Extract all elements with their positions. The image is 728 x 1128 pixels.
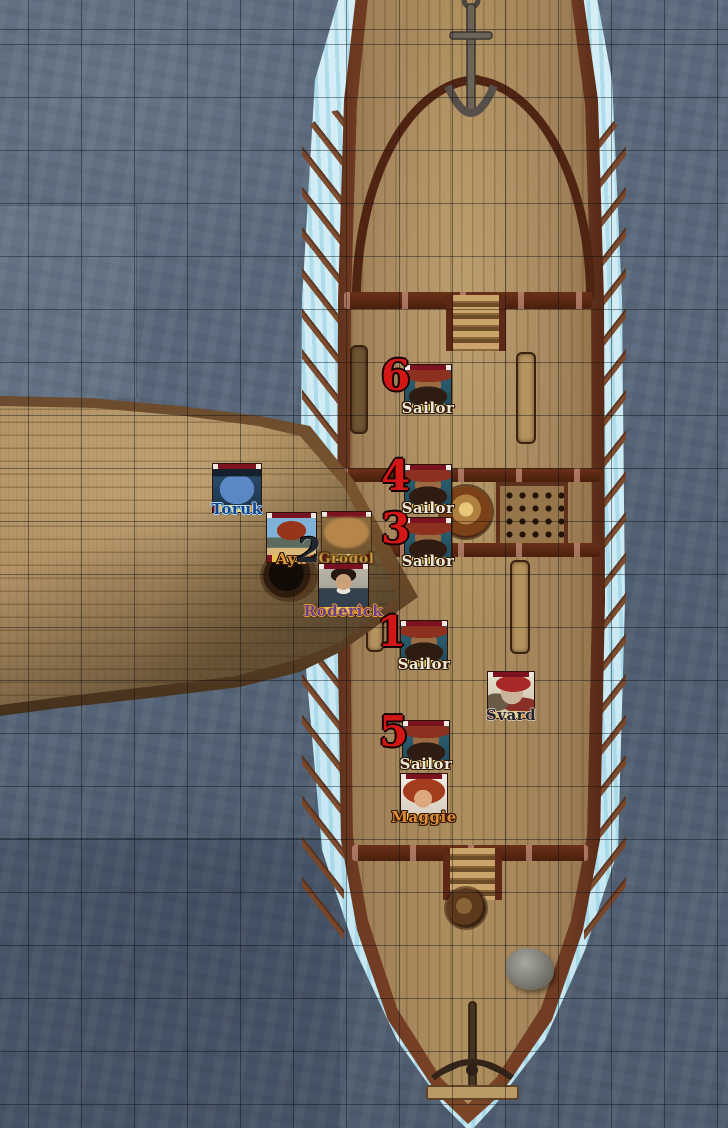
token-label: Svard (486, 706, 536, 724)
initiative-number: 5 (379, 711, 408, 753)
token-sailor-3[interactable]: 3 Sailor (404, 517, 452, 565)
token-svard[interactable]: Svard (487, 671, 535, 719)
token-sailor-4[interactable]: 4 Sailor (404, 464, 452, 512)
token-sailor-6[interactable]: 6 Sailor (404, 364, 452, 412)
anchor-icon (441, 0, 501, 148)
token-label: Sailor (400, 755, 453, 773)
token-label: Sailor (402, 499, 455, 517)
water-tile-seam-dark (0, 838, 340, 1128)
token-sailor-5[interactable]: 5 Sailor (402, 720, 450, 768)
initiative-number-2-marker[interactable]: 2 (295, 534, 323, 568)
initiative-number: 4 (381, 455, 410, 497)
token-label: Toruk (211, 500, 262, 518)
deck-rock (506, 948, 554, 990)
rowing-bench (510, 560, 530, 654)
token-art-grogol (322, 517, 371, 554)
token-label: Roderick (304, 602, 384, 620)
rowing-bench (516, 352, 536, 444)
battle-map: Toruk Grogol Aya Roderick 6 Sailor 3 Sai… (0, 0, 728, 1128)
token-toruk[interactable]: Toruk (212, 463, 262, 513)
token-sailor-1[interactable]: 1 Sailor (400, 620, 448, 668)
aft-capstan (446, 888, 486, 928)
token-label: Maggie (391, 808, 457, 826)
water-tile-seam-light (0, 205, 137, 398)
initiative-number: 6 (381, 355, 410, 397)
token-grogol[interactable]: Grogol (321, 511, 372, 562)
token-label: Sailor (398, 655, 451, 673)
ladder-fore (446, 295, 506, 351)
token-maggie[interactable]: Maggie (400, 773, 448, 821)
ballista (425, 1000, 520, 1105)
token-label: Sailor (402, 399, 455, 417)
initiative-number: 1 (377, 611, 406, 653)
token-roderick[interactable]: Roderick (318, 563, 369, 615)
token-label: Sailor (402, 552, 455, 570)
